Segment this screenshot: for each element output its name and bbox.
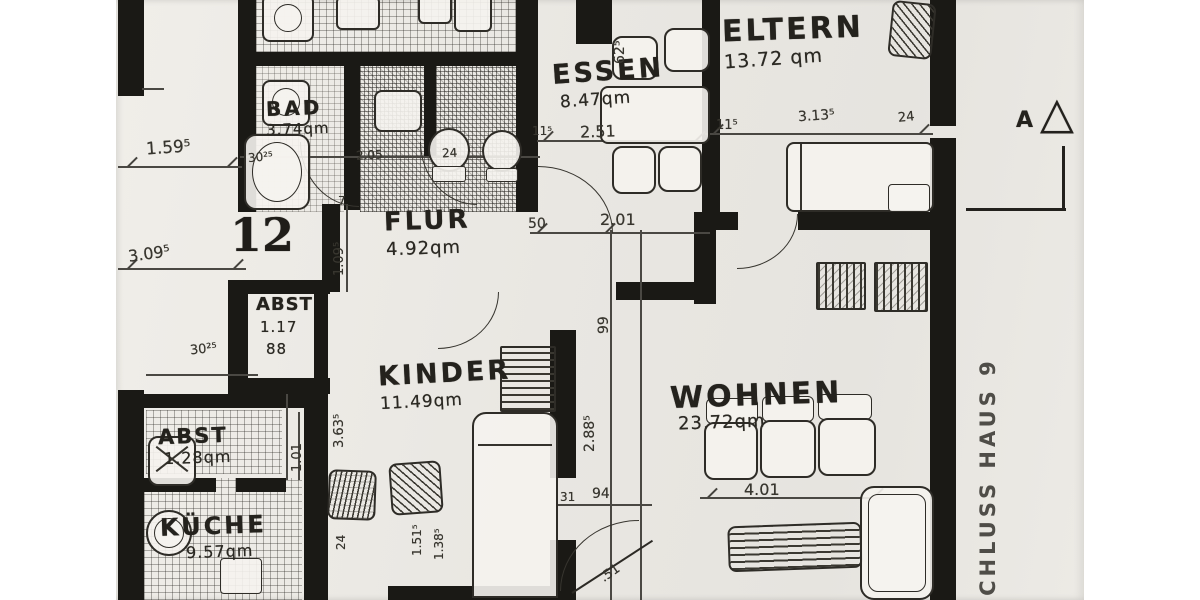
wall-segment: [304, 390, 328, 600]
room-dim-abst-upper-1: 1.17: [260, 318, 297, 336]
desk: [327, 469, 377, 521]
wall-segment: [616, 282, 716, 300]
dining-chair: [658, 146, 702, 192]
toilet: [418, 0, 452, 24]
armchair-cushion: [868, 494, 926, 592]
room-label-abst-lower: ABST: [158, 423, 229, 449]
toilet-tank: [432, 166, 466, 182]
section-triangle-icon: △: [1040, 88, 1074, 139]
wall-segment: [314, 292, 328, 392]
dimension-line: [556, 504, 652, 506]
section-letter: A: [1016, 108, 1033, 133]
room-label-abst-upper: ABST: [256, 294, 313, 315]
dim-label: 2.88⁵: [582, 390, 598, 452]
dim-label: 1.59⁵: [145, 136, 191, 159]
dim-label: 2.01: [600, 210, 636, 229]
bed: [472, 412, 558, 598]
wall-segment: [118, 394, 310, 408]
dim-label: 1.01: [290, 414, 305, 472]
wall-tick: [142, 88, 164, 90]
dim-label: 24: [442, 146, 458, 161]
dim-label: 62⁵: [612, 8, 628, 64]
wall-segment: [516, 0, 538, 212]
wardrobe: [887, 0, 937, 60]
dim-label: 3.13⁵: [797, 107, 835, 126]
dining-chair: [664, 28, 710, 72]
sofa-seat: [760, 420, 816, 478]
wall-segment: [118, 0, 144, 96]
sink: [454, 0, 492, 32]
dim-label: 24: [897, 109, 915, 126]
nightstand: [888, 184, 930, 212]
dim-label: 30²⁵: [247, 149, 273, 165]
bed-pillow-line: [478, 444, 552, 446]
dim-label: 94: [592, 486, 610, 502]
dim-label: 2.51: [580, 121, 616, 141]
room-area-wohnen: 23.72qm: [678, 410, 766, 434]
room-label-bad: BAD: [266, 95, 323, 121]
dim-label: 2.05: [356, 147, 383, 162]
coffee-table: [727, 522, 863, 573]
dim-label: 4.01: [744, 480, 780, 499]
wall-segment: [798, 212, 932, 230]
wall-segment: [236, 478, 286, 492]
dim-label: 50: [528, 216, 546, 232]
room-area-abst-lower: 1.28qm: [164, 447, 232, 468]
dimension-line: [118, 166, 242, 168]
sink-basin: [274, 4, 302, 32]
dim-label: 1.09⁵: [332, 212, 347, 276]
section-mark-line: [966, 208, 1066, 211]
dim-label: 3.63⁵: [332, 386, 347, 448]
dim-label: 7: [338, 194, 346, 208]
room-dim-abst-upper-2: 88: [266, 340, 287, 358]
dimension-line: [700, 497, 884, 499]
dimension-line: [705, 133, 933, 135]
dim-label: 1.51⁵: [410, 496, 424, 556]
toilet-tank: [486, 168, 518, 182]
room-area-kueche: 9.57qm: [186, 541, 254, 562]
toilet-bowl: [482, 130, 522, 172]
bed-headboard-line: [800, 144, 802, 210]
dim-label: 24: [334, 518, 348, 550]
shelf-unit: [874, 262, 928, 312]
sofa-seat: [818, 418, 876, 476]
dining-chair: [612, 146, 656, 194]
room-label-kueche: KÜCHE: [160, 510, 268, 542]
floor-plan: BAD 3.74qm ESSEN 8.47qm ELTERN 13.72 qm …: [0, 0, 1200, 600]
dim-label: 99: [596, 298, 612, 334]
room-area-flur: 4.92qm: [386, 237, 462, 261]
partition-line: [286, 394, 288, 480]
dimension-line: [146, 374, 258, 376]
wall-segment: [118, 390, 144, 600]
sink: [336, 0, 380, 30]
kitchen-counter: [220, 558, 262, 594]
shelf-unit: [816, 262, 866, 310]
dim-label: 1.38⁵: [432, 500, 446, 560]
dim-label: 11⁵: [532, 124, 552, 138]
room-label-flur: FLUR: [384, 204, 472, 237]
dim-label: 30²⁵: [189, 341, 217, 359]
sink: [374, 90, 422, 132]
dimension-line: [118, 268, 246, 270]
dim-label: 31: [560, 490, 575, 504]
section-mark-line: [1062, 146, 1065, 210]
side-annotation-haus: SCHLUSS HAUS 9: [976, 305, 1000, 600]
room-area-bad: 3.74qm: [266, 119, 330, 139]
dim-label: 11⁵: [716, 118, 738, 133]
dimension-line: [640, 230, 642, 600]
unit-number: 12: [230, 208, 294, 262]
wall-segment: [576, 0, 612, 44]
wall-segment: [254, 52, 537, 66]
room-label-eltern: ELTERN: [721, 10, 864, 50]
